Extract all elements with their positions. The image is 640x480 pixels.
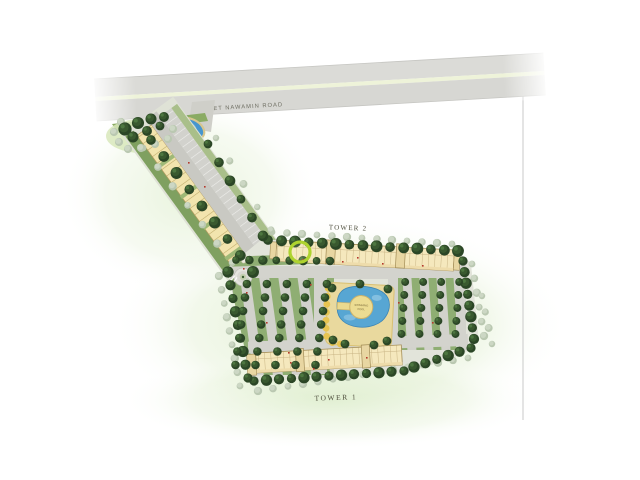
tree-dark-icon (356, 280, 365, 289)
tree-dark-icon (171, 167, 183, 179)
tree-dark-icon (417, 304, 425, 312)
tree-dark-icon (452, 330, 460, 338)
tree-dark-icon (209, 217, 221, 229)
tree-dark-icon (275, 334, 284, 343)
tree-light-icon (110, 128, 118, 136)
tree-dark-icon (156, 122, 165, 131)
tree-dark-icon (259, 307, 268, 316)
tree-dark-icon (277, 320, 286, 329)
tree-dark-icon (240, 360, 250, 370)
tree-dark-icon (436, 291, 444, 299)
tree-light-icon (215, 272, 223, 280)
tree-light-icon (482, 308, 489, 315)
tree-dark-icon (243, 280, 252, 289)
tree-dark-icon (241, 293, 250, 302)
accent-dot (288, 352, 290, 354)
accent-dot (422, 265, 424, 267)
tree-light-icon (269, 385, 277, 393)
tree-light-icon (169, 182, 177, 190)
tree-dark-icon (411, 243, 423, 255)
accent-dot (328, 359, 330, 361)
tree-dark-icon (313, 347, 322, 356)
accent-dot (382, 263, 384, 265)
tree-dark-icon (274, 374, 284, 384)
tree-dark-icon (458, 256, 467, 265)
accent-dot (432, 322, 434, 324)
tree-dark-icon (349, 369, 359, 379)
tree-dark-icon (258, 256, 267, 265)
tree-dark-icon (398, 243, 409, 254)
tree-dark-icon (237, 195, 246, 204)
tree-dark-icon (464, 300, 474, 310)
tree-dark-icon (426, 245, 436, 255)
tree-dark-icon (454, 291, 462, 299)
tree-dark-icon (297, 320, 306, 329)
tree-light-icon (221, 300, 228, 307)
tree-dark-icon (235, 334, 244, 343)
accent-dot (398, 302, 400, 304)
tree-light-icon (254, 204, 260, 210)
tree-dark-icon (362, 369, 371, 378)
pool-island-label-line2: POOL (357, 307, 365, 311)
tree-dark-icon (416, 317, 424, 325)
tree-dark-icon (311, 361, 320, 370)
tree-dark-icon (311, 372, 321, 382)
tree-light-icon (465, 355, 472, 362)
tree-dark-icon (225, 175, 236, 186)
tree-light-icon (164, 135, 172, 143)
accent-dot (204, 186, 206, 188)
tree-light-icon (226, 157, 233, 164)
tree-dark-icon (243, 373, 252, 382)
tree-dark-icon (399, 304, 407, 312)
tree-dark-icon (370, 341, 379, 350)
pool-bridge (337, 302, 350, 310)
tree-dark-icon (197, 201, 208, 212)
tree-dark-icon (452, 245, 464, 257)
tree-dark-icon (291, 361, 300, 370)
tree-light-icon (169, 125, 177, 133)
tree-dark-icon (146, 135, 156, 145)
tree-dark-icon (313, 257, 321, 265)
tree-dark-icon (233, 347, 242, 356)
tree-dark-icon (257, 320, 266, 329)
tree-dark-icon (245, 256, 254, 265)
tree-light-icon (213, 135, 219, 141)
tree-dark-icon (435, 304, 443, 312)
tree-dark-icon (237, 320, 246, 329)
tree-dark-icon (468, 323, 477, 332)
accent-dot (188, 162, 190, 164)
tree-dark-icon (159, 112, 169, 122)
tree-dark-icon (439, 245, 450, 256)
tree-light-icon (213, 240, 221, 248)
tree-dark-icon (298, 372, 309, 383)
tree-dark-icon (214, 158, 224, 168)
tree-dark-icon (223, 234, 233, 244)
tree-dark-icon (261, 375, 272, 386)
tree-dark-icon (303, 280, 312, 289)
tree-dark-icon (455, 278, 463, 286)
tree-light-icon (226, 327, 234, 335)
tree-dark-icon (459, 267, 469, 277)
tree-light-icon (469, 261, 476, 268)
tree-light-icon (489, 341, 495, 347)
tree-dark-icon (247, 213, 257, 223)
highlighted-unit-marker[interactable] (290, 242, 310, 262)
tree-dark-icon (341, 340, 350, 349)
tree-light-icon (254, 387, 262, 395)
tree-dark-icon (293, 347, 302, 356)
tree-light-icon (298, 230, 306, 238)
tree-dark-icon (358, 240, 369, 251)
tree-dark-icon (272, 257, 280, 265)
tree-dark-icon (400, 291, 408, 299)
tree-dark-icon (281, 293, 290, 302)
tree-dark-icon (336, 370, 347, 381)
tree-light-icon (479, 293, 485, 299)
tree-light-icon (115, 138, 123, 146)
tree-dark-icon (330, 238, 342, 250)
tree-dark-icon (276, 235, 287, 246)
tree-light-icon (285, 383, 292, 390)
pool-island-label-line1: SWIMMING (354, 303, 368, 308)
tree-dark-icon (158, 151, 169, 162)
tree-dark-icon (454, 347, 464, 357)
tree-dark-icon (324, 371, 333, 380)
tree-dark-icon (146, 114, 157, 125)
tree-dark-icon (443, 350, 454, 361)
tree-light-icon (229, 341, 236, 348)
tree-dark-icon (432, 355, 441, 364)
tree-light-icon (223, 313, 231, 321)
tree-light-icon (234, 369, 242, 377)
tree-dark-icon (321, 293, 330, 302)
tower2-end-cap (270, 242, 277, 259)
tree-dark-icon (251, 361, 260, 370)
tree-dark-icon (434, 317, 442, 325)
tree-dark-icon (323, 280, 332, 289)
tree-dark-icon (283, 280, 292, 289)
tree-dark-icon (466, 343, 475, 352)
tree-light-icon (240, 180, 248, 188)
tree-dark-icon (263, 280, 272, 289)
tree-dark-icon (255, 334, 264, 343)
tree-dark-icon (247, 266, 259, 278)
tree-light-icon (124, 145, 132, 153)
tree-light-icon (471, 275, 479, 283)
tree-dark-icon (419, 278, 427, 286)
tree-dark-icon (418, 291, 426, 299)
tree-dark-icon (371, 240, 383, 252)
accent-dot (366, 357, 368, 359)
tree-dark-icon (386, 367, 396, 377)
tree-light-icon (184, 202, 191, 209)
tree-dark-icon (453, 304, 461, 312)
tree-dark-icon (398, 330, 406, 338)
tree-dark-icon (317, 238, 328, 249)
accent-dot (310, 284, 312, 286)
tree-dark-icon (384, 285, 393, 294)
tree-dark-icon (132, 117, 144, 129)
accent-dot (243, 268, 245, 270)
tree-light-icon (480, 332, 488, 340)
tree-dark-icon (398, 317, 406, 325)
tree-dark-icon (373, 367, 384, 378)
tree-light-icon (476, 304, 483, 311)
tree-dark-icon (273, 347, 282, 356)
tree-dark-icon (420, 358, 430, 368)
tree-dark-icon (258, 231, 269, 242)
tower1-label: TOWER 1 (314, 392, 357, 402)
tree-light-icon (137, 144, 145, 152)
tree-light-icon (218, 286, 226, 294)
tree-dark-icon (399, 366, 408, 375)
tree-dark-icon (225, 280, 235, 290)
tree-dark-icon (465, 311, 476, 322)
accent-dot (313, 368, 315, 370)
tree-dark-icon (295, 334, 304, 343)
tree-dark-icon (228, 294, 237, 303)
tree-dark-icon (408, 361, 419, 372)
tree-dark-icon (383, 337, 392, 346)
tree-dark-icon (299, 307, 308, 316)
tree-dark-icon (469, 334, 479, 344)
tree-dark-icon (385, 242, 395, 252)
tree-light-icon (267, 226, 274, 233)
accent-dot (342, 261, 344, 263)
tree-dark-icon (253, 347, 262, 356)
tree-dark-icon (329, 336, 338, 345)
tree-dark-icon (401, 278, 409, 286)
tree-dark-icon (142, 126, 152, 136)
tree-dark-icon (184, 185, 194, 195)
site-plan-image: KASET NAWAMIN ROAD (0, 0, 640, 480)
tree-dark-icon (271, 361, 280, 370)
accent-dot (266, 322, 268, 324)
tree-dark-icon (287, 374, 296, 383)
tree-dark-icon (301, 293, 310, 302)
tree-dark-icon (222, 266, 233, 277)
tree-dark-icon (279, 307, 288, 316)
tree-dark-icon (326, 257, 335, 266)
tree-dark-icon (231, 361, 240, 370)
tree-dark-icon (463, 290, 472, 299)
tree-dark-icon (345, 240, 355, 250)
tree-dark-icon (434, 330, 442, 338)
tree-light-icon (314, 232, 321, 239)
tree-dark-icon (128, 132, 139, 143)
tree-light-icon (283, 229, 291, 237)
tree-light-icon (154, 163, 162, 171)
tree-dark-icon (315, 334, 324, 343)
tree-dark-icon (416, 330, 424, 338)
tree-dark-icon (204, 140, 213, 149)
tower1-stair-core (361, 345, 370, 368)
tree-light-icon (485, 324, 493, 332)
tree-dark-icon (437, 278, 445, 286)
accent-dot (357, 257, 359, 259)
pool-island (349, 295, 373, 319)
tree-light-icon (237, 383, 244, 390)
accent-dot (290, 362, 292, 364)
tree-dark-icon (232, 256, 240, 264)
tree-light-icon (199, 221, 207, 229)
tree-light-icon (478, 318, 486, 326)
tree-dark-icon (319, 307, 328, 316)
tree-dark-icon (317, 320, 326, 329)
tower2-label: TOWER 2 (329, 223, 368, 232)
tree-dark-icon (261, 293, 270, 302)
tree-dark-icon (452, 317, 460, 325)
tree-dark-icon (239, 307, 248, 316)
accent-dot (246, 292, 248, 294)
